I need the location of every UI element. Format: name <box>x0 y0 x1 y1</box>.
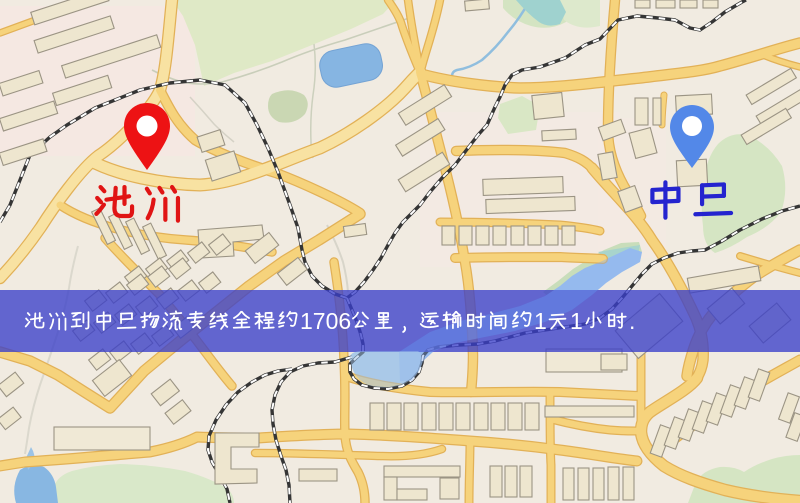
svg-text:1: 1 <box>534 308 547 334</box>
svg-text:1706: 1706 <box>300 308 351 334</box>
svg-text:.: . <box>629 308 635 334</box>
svg-text:1: 1 <box>570 308 583 334</box>
